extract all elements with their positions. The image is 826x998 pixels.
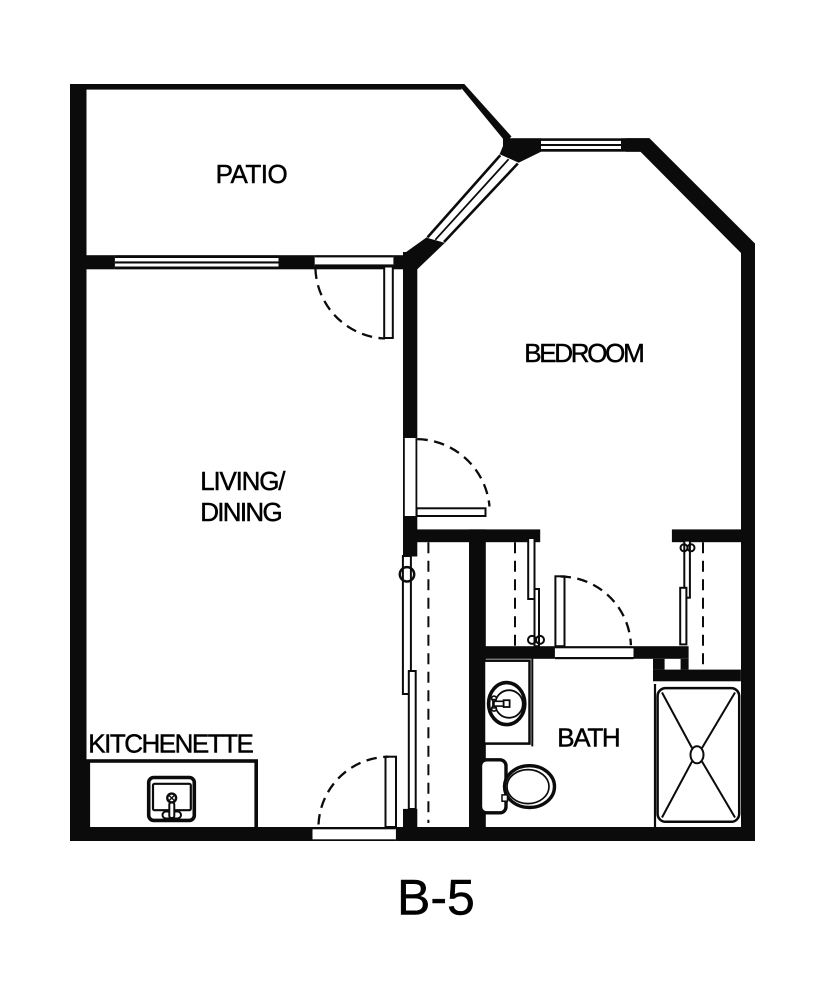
svg-text:DINING: DINING [200,497,281,527]
svg-text:B-5: B-5 [397,869,475,925]
svg-text:KITCHENETTE: KITCHENETTE [88,729,253,759]
svg-text:LIVING/: LIVING/ [200,466,286,496]
svg-text:BATH: BATH [557,723,619,753]
svg-text:PATIO: PATIO [216,159,288,189]
svg-text:BEDROOM: BEDROOM [524,338,643,368]
